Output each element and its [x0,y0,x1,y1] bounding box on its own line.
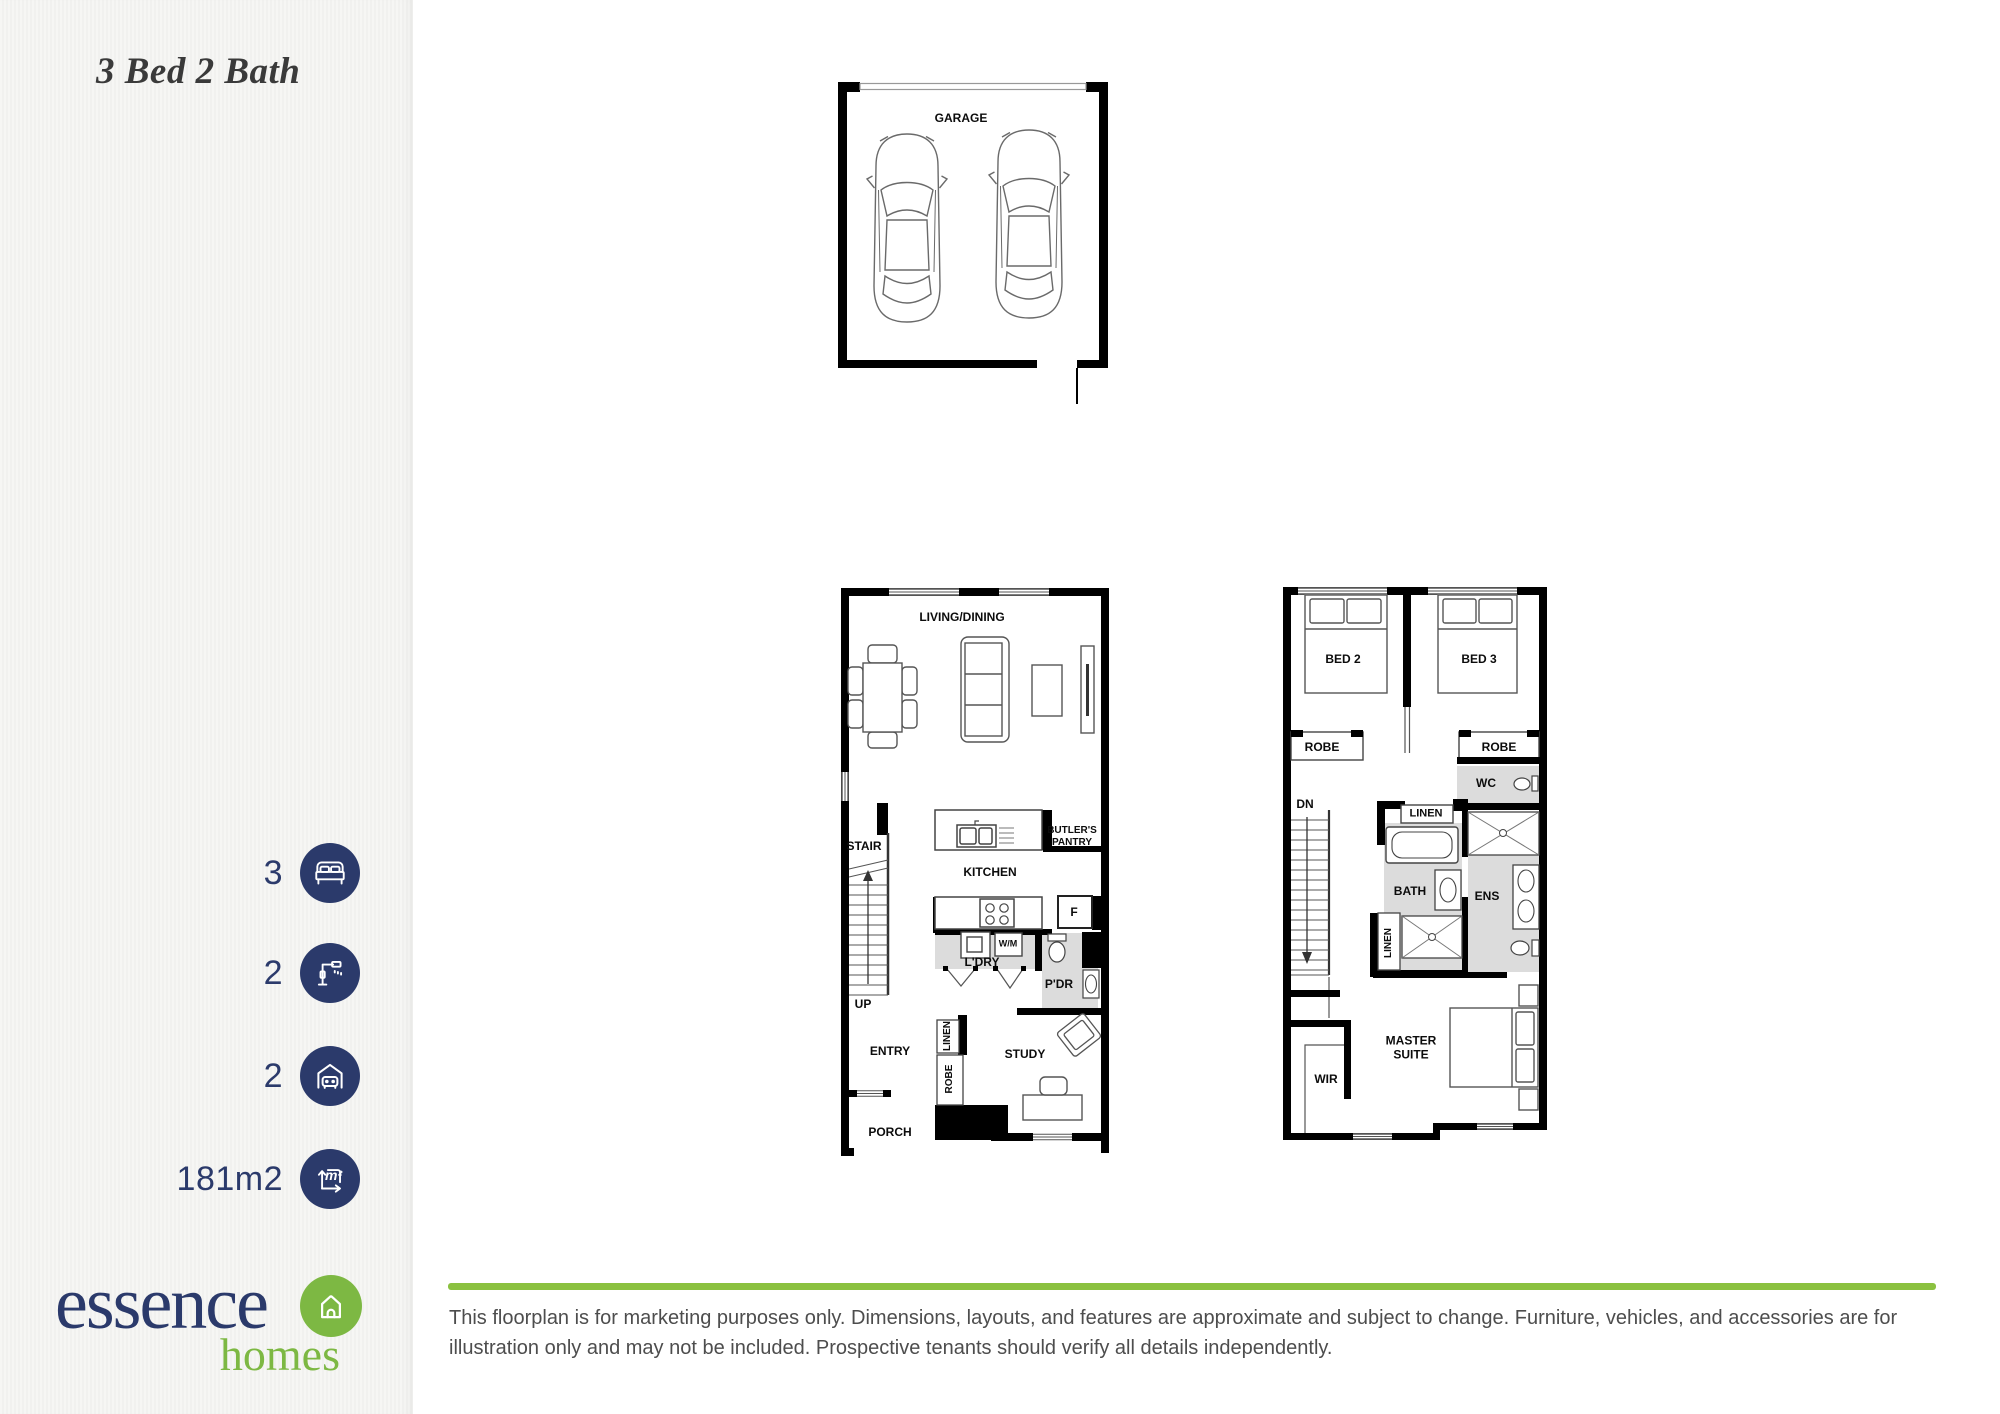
brand-logo: essence homes [55,1262,385,1382]
laundry-label: L'DRY [964,955,999,969]
wc-label: WC [1476,776,1496,790]
ground-floor-plan: LIVING/DINING STAIR KITCHEN BUTLER'S PAN… [841,588,1109,1168]
study-label: STUDY [1005,1047,1046,1061]
garage-label: GARAGE [935,111,988,125]
upper-floor-plan: BED 2 BED 3 ROBE ROBE WC DN LINEN BATH E… [1283,587,1547,1140]
bed3-label: BED 3 [1461,652,1496,666]
divider-line [448,1283,1936,1290]
kitchen-label: KITCHEN [963,865,1016,879]
living-dining-label: LIVING/DINING [919,610,1004,624]
page-title: 3 Bed 2 Bath [96,50,300,93]
fridge-label: F [1070,905,1077,919]
linen-side-label: LINEN [1383,928,1395,958]
bathrooms-count: 2 [264,954,283,993]
master-suite-label: MASTER SUITE [1375,1034,1447,1063]
stair-label: STAIR [846,839,881,853]
robe-right-label: ROBE [1482,740,1517,754]
bed-icon [300,843,360,903]
floorplan-page: 3 Bed 2 Bath 3 2 [0,0,2000,1414]
car-garage-icon [300,1046,360,1106]
bed2-label: BED 2 [1325,652,1360,666]
washing-machine-label: W/M [999,939,1018,950]
robe-label: ROBE [944,1065,956,1094]
bath-label: BATH [1394,884,1426,898]
bedrooms-count: 3 [264,854,283,893]
spec-garage: 2 [130,1046,360,1106]
garage-plan-drawing [838,82,1108,412]
entry-label: ENTRY [870,1044,910,1058]
linen-top-label: LINEN [1410,807,1443,820]
spec-bedrooms: 3 [130,843,360,903]
garage-plan: GARAGE [838,82,1108,412]
m2-glyph: m² [325,1167,342,1183]
area-icon: m² [300,1149,360,1209]
logo-suffix: homes [220,1328,340,1381]
up-label: UP [855,997,872,1011]
porch-label: PORCH [868,1125,911,1139]
spec-area: 181m2 m² [130,1149,360,1209]
disclaimer-text: This floorplan is for marketing purposes… [449,1303,1944,1363]
spec-bathrooms: 2 [130,943,360,1003]
wir-label: WIR [1314,1072,1337,1086]
dn-label: DN [1296,797,1313,811]
sidebar: 3 Bed 2 Bath 3 2 [0,0,413,1414]
linen-label: LINEN [942,1021,954,1051]
butlers-pantry-label: BUTLER'S PANTRY [1039,825,1105,849]
ens-label: ENS [1475,889,1500,903]
shower-icon [300,943,360,1003]
powder-label: P'DR [1045,977,1073,991]
robe-left-label: ROBE [1305,740,1340,754]
garage-count: 2 [264,1057,283,1096]
area-value: 181m2 [177,1160,283,1199]
